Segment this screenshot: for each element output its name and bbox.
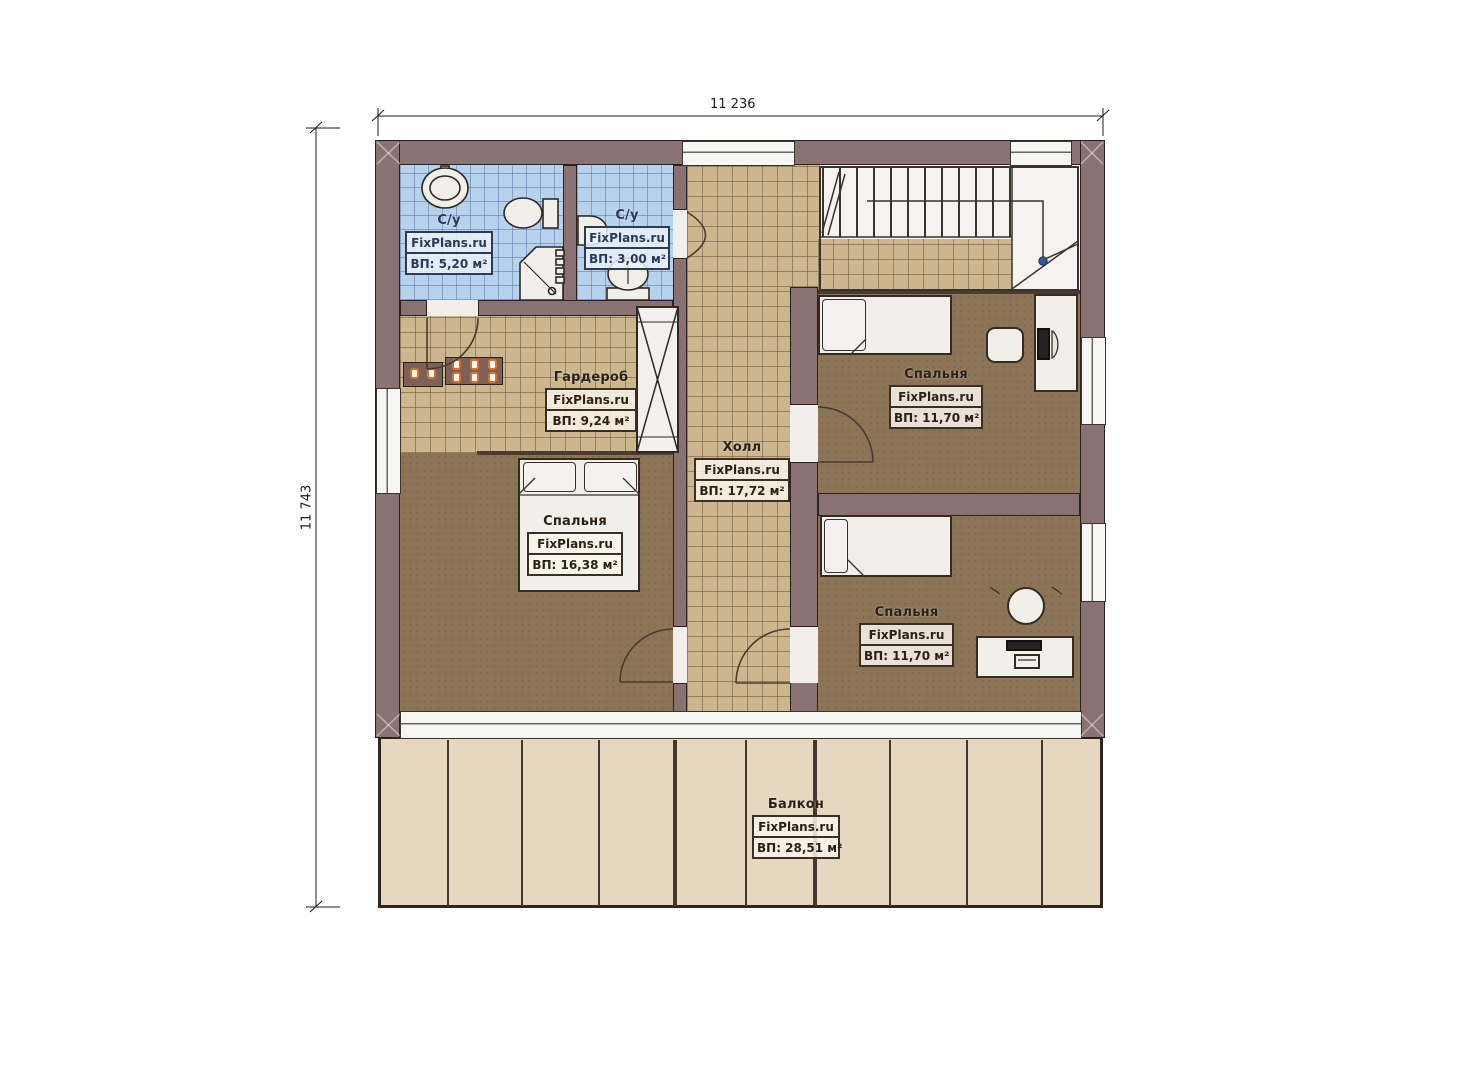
monitor (1037, 328, 1050, 360)
room-site: FixPlans.ru (529, 534, 621, 553)
wall-bathroom-bottom-a (400, 300, 427, 316)
wall-bathroom-partition (563, 165, 577, 316)
room-label-balcony: Балкон FixPlans.ru ВП: 28,51 м² (752, 797, 840, 859)
room-name: Спальня (543, 514, 607, 529)
balcony-divider (1041, 740, 1043, 906)
stair-landing-strip-floor (818, 239, 1012, 290)
cabinet-knob (452, 372, 461, 383)
pillow (824, 519, 848, 573)
balcony-divider (745, 740, 747, 906)
room-area: ВП: 5,20 м² (407, 252, 491, 273)
room-area: ВП: 28,51 м² (754, 836, 838, 857)
room-site: FixPlans.ru (891, 387, 981, 406)
room-site: FixPlans.ru (407, 233, 491, 252)
room-label-bathroom-2: С/у FixPlans.ru ВП: 3,00 м² (584, 208, 670, 270)
window-right-bedroom2 (1081, 337, 1106, 425)
pillow (523, 462, 576, 492)
door-gap-bedroom-bottom-right (790, 627, 818, 683)
room-name: Гардероб (554, 370, 629, 385)
printer (1014, 654, 1040, 669)
door-gap-bathroom-1 (427, 300, 478, 316)
laptop (1006, 640, 1042, 651)
wall-hall-right-b (790, 462, 818, 627)
door-gap-bathroom-2 (673, 210, 687, 258)
room-area: ВП: 3,00 м² (586, 247, 668, 268)
window-bottom-glazing (400, 711, 1082, 739)
room-area: ВП: 9,24 м² (547, 409, 635, 430)
room-site: FixPlans.ru (696, 460, 788, 479)
wall-right (1080, 140, 1105, 738)
room-name: С/у (437, 213, 460, 228)
room-area: ВП: 17,72 м² (696, 479, 788, 500)
balcony-post (673, 740, 677, 906)
wall-hall-left-c (673, 683, 687, 713)
wall-hall-left-b (673, 258, 687, 627)
cabinet-knob (488, 372, 497, 383)
pillow (822, 299, 866, 351)
wall-bathroom-bottom-b (478, 300, 673, 316)
cabinet-knob (488, 359, 497, 370)
room-label-hall: Холл FixPlans.ru ВП: 17,72 м² (694, 440, 790, 502)
room-site: FixPlans.ru (754, 817, 838, 836)
balcony-divider (521, 740, 523, 906)
room-site: FixPlans.ru (861, 625, 952, 644)
room-name: Холл (723, 440, 762, 455)
hall-floor-upper (687, 165, 820, 287)
room-label-bathroom-1: С/у FixPlans.ru ВП: 5,20 м² (405, 213, 493, 275)
room-name: Спальня (904, 367, 968, 382)
balcony-divider (889, 740, 891, 906)
room-site: FixPlans.ru (547, 390, 635, 409)
pillow (584, 462, 637, 492)
wall-bedrooms-divider (818, 493, 1080, 516)
wall-wardrobe-bedroom (477, 451, 673, 455)
room-label-bedroom-master: Спальня FixPlans.ru ВП: 16,38 м² (527, 514, 623, 576)
window-right-bedroom3 (1081, 523, 1106, 602)
window-left (376, 388, 401, 494)
room-site: FixPlans.ru (586, 228, 668, 247)
door-gap-bedroom-master (673, 627, 687, 683)
room-label-wardrobe: Гардероб FixPlans.ru ВП: 9,24 м² (545, 370, 637, 432)
staircase-steps (822, 167, 1014, 237)
room-area: ВП: 11,70 м² (861, 644, 952, 665)
window-top-stairs (1010, 141, 1072, 166)
room-label-bedroom-bottom-right: Спальня FixPlans.ru ВП: 11,70 м² (859, 605, 954, 667)
room-area: ВП: 11,70 м² (891, 406, 981, 427)
dimension-height-label: 11 743 (299, 485, 314, 531)
wall-hall-left-a (673, 165, 687, 210)
wardrobe-cabinet-small (403, 362, 443, 387)
balcony-divider (966, 740, 968, 906)
office-chair (986, 327, 1024, 363)
floor-plan-canvas: 11 236 11 743 С/у FixPlans.ru ВП: 5,20 м… (0, 0, 1473, 1080)
balcony-divider (447, 740, 449, 906)
cabinet-knob (470, 372, 479, 383)
window-top-hall (682, 141, 795, 166)
room-area: ВП: 16,38 м² (529, 553, 621, 574)
balcony-floor (378, 738, 1103, 908)
cabinet-knob (470, 359, 479, 370)
balcony-divider (598, 740, 600, 906)
wall-hall-right-a (790, 287, 818, 405)
door-gap-bedroom-top-right (790, 405, 818, 462)
room-label-bedroom-top-right: Спальня FixPlans.ru ВП: 11,70 м² (889, 367, 983, 429)
room-name: С/у (615, 208, 638, 223)
round-chair (1007, 587, 1045, 625)
cabinet-knob (427, 368, 436, 379)
dimension-width-label: 11 236 (710, 97, 756, 112)
room-name: Спальня (875, 605, 939, 620)
cabinet-knob (410, 368, 419, 379)
room-name: Балкон (768, 797, 824, 812)
cabinet-knob (452, 359, 461, 370)
